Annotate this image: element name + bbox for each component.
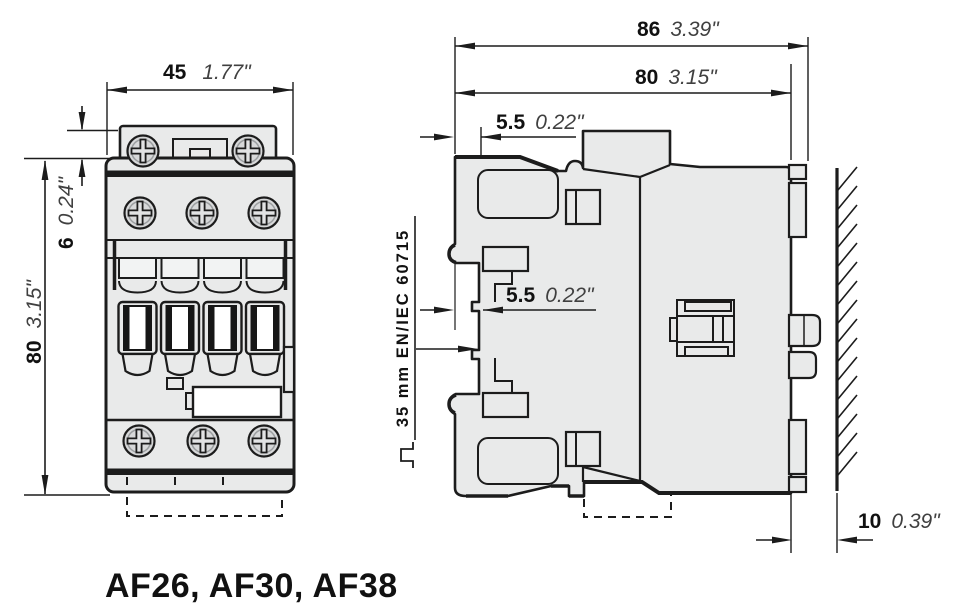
dim-side-depth-body: 803.15" — [635, 66, 718, 89]
phillips-screw-icon — [124, 426, 155, 457]
drawing-svg: 451.77" 60.24" 803.15" — [0, 0, 964, 616]
dashed-accessory-outline — [584, 495, 671, 517]
side-view — [449, 131, 857, 517]
terminal-unit — [246, 258, 284, 375]
terminal-unit — [119, 258, 157, 375]
dashed-accessory-outline — [127, 497, 282, 516]
arrow-icon — [434, 134, 501, 141]
phillips-screw-icon — [233, 136, 264, 167]
arrow-icon — [772, 537, 857, 544]
arrow-icon — [79, 112, 86, 177]
dim-side-top-offset: 5.50.22" — [496, 111, 585, 134]
front-bottom-band — [107, 469, 294, 476]
dimension-drawing: 451.77" 60.24" 803.15" — [0, 0, 964, 616]
din-rail-symbol-icon — [401, 442, 413, 468]
svg-text:35 mm EN/IEC 60715: 35 mm EN/IEC 60715 — [394, 229, 412, 427]
svg-text:803.15": 803.15" — [23, 279, 46, 364]
terminal-unit — [161, 258, 199, 375]
front-top-band — [107, 171, 294, 178]
din-rail-label: 35 mm EN/IEC 60715 — [394, 216, 415, 468]
mounting-wall — [837, 167, 857, 491]
dim-front-width: 451.77" — [163, 61, 252, 84]
svg-text:60.24": 60.24" — [55, 175, 78, 249]
dim-side-rail-offset: 5.50.22" — [506, 284, 595, 307]
phillips-screw-icon — [188, 426, 219, 457]
phillips-screw-icon — [249, 426, 280, 457]
dim-front-top-offset: 60.24" — [55, 175, 78, 249]
nameplate — [193, 387, 281, 417]
page-title: AF26, AF30, AF38 — [105, 567, 398, 605]
dim-side-depth-total: 863.39" — [637, 18, 720, 41]
terminal-unit — [204, 258, 242, 375]
dim-front-height: 803.15" — [23, 279, 46, 364]
dim-wall-gap: 100.39" — [858, 510, 941, 533]
mounting-clips — [789, 165, 820, 492]
front-view — [106, 126, 294, 516]
phillips-screw-icon — [125, 198, 156, 229]
phillips-screw-icon — [187, 198, 218, 229]
phillips-screw-icon — [128, 136, 159, 167]
wall-hatch — [838, 167, 857, 475]
phillips-screw-icon — [249, 198, 280, 229]
side-latch — [284, 347, 294, 392]
side-body — [449, 131, 791, 496]
